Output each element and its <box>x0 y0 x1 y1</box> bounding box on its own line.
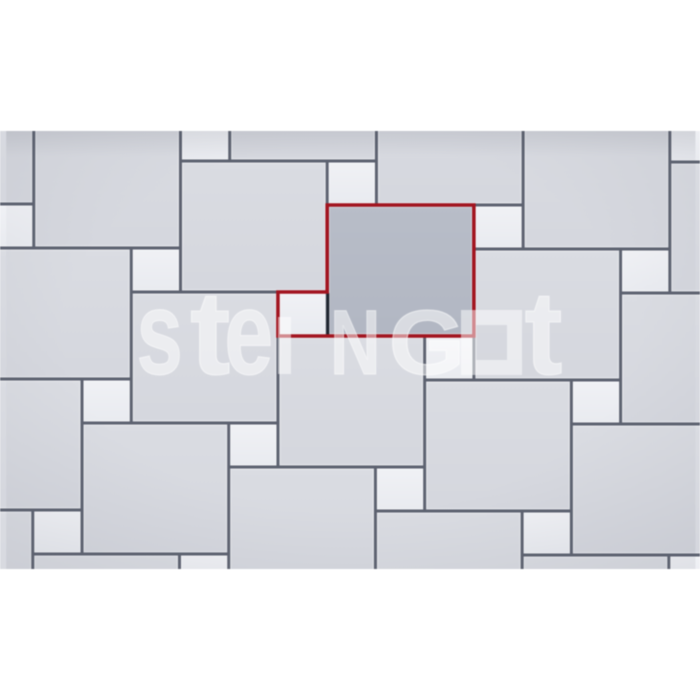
svg-text:N: N <box>330 292 380 394</box>
svg-text:t: t <box>525 266 563 400</box>
svg-text:e: e <box>224 267 273 400</box>
svg-text:s: s <box>137 266 183 399</box>
svg-text:G: G <box>389 292 466 394</box>
